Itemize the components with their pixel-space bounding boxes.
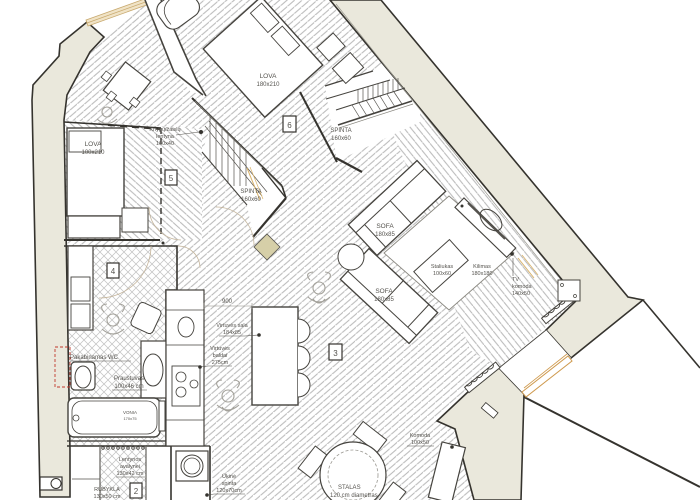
svg-text:Pakabinamas WC: Pakabinamas WC xyxy=(70,355,119,361)
svg-text:Komoda: Komoda xyxy=(410,433,431,439)
svg-text:LOVA: LOVA xyxy=(85,141,103,148)
svg-text:160x60: 160x60 xyxy=(331,136,351,142)
svg-text:100x46 cm: 100x46 cm xyxy=(114,384,143,390)
svg-text:170x75: 170x75 xyxy=(123,416,137,421)
svg-text:STALAS: STALAS xyxy=(338,485,361,491)
svg-text:140x50: 140x50 xyxy=(512,291,530,297)
svg-text:SPINTA: SPINTA xyxy=(330,128,351,134)
svg-text:TV: TV xyxy=(512,277,519,283)
svg-text:275cm: 275cm xyxy=(212,360,229,366)
svg-text:180x180: 180x180 xyxy=(471,271,492,277)
svg-text:180x210: 180x210 xyxy=(256,82,280,88)
svg-text:160x40: 160x40 xyxy=(156,141,174,147)
svg-text:180x85: 180x85 xyxy=(375,232,395,238)
svg-text:SOFA: SOFA xyxy=(376,223,394,230)
svg-text:SOFA: SOFA xyxy=(375,288,393,295)
svg-text:100x210: 100x210 xyxy=(81,150,105,156)
svg-text:Kilimas: Kilimas xyxy=(473,264,491,270)
svg-text:3: 3 xyxy=(333,349,338,358)
svg-text:avalynei: avalynei xyxy=(120,464,140,470)
svg-text:120x70cm: 120x70cm xyxy=(216,488,242,494)
svg-text:120 cm diametras: 120 cm diametras xyxy=(330,493,378,499)
svg-text:2: 2 xyxy=(134,487,139,496)
svg-text:Lentynos: Lentynos xyxy=(119,457,142,463)
svg-text:130x42 cm: 130x42 cm xyxy=(117,471,144,477)
svg-text:baldai: baldai xyxy=(213,353,228,359)
svg-text:Knygų/žaislų: Knygų/žaislų xyxy=(149,127,180,133)
svg-text:100x60: 100x60 xyxy=(433,271,451,277)
svg-text:180x85: 180x85 xyxy=(374,297,394,303)
svg-text:Staliukas: Staliukas xyxy=(431,264,454,270)
svg-text:spinta: spinta xyxy=(222,481,238,487)
svg-text:100x50: 100x50 xyxy=(411,440,429,446)
svg-text:Ūkinė: Ūkinė xyxy=(222,473,236,480)
svg-text:160x60: 160x60 xyxy=(241,197,261,203)
svg-text:lentyna: lentyna xyxy=(156,134,175,140)
svg-text:Virtuvės sala: Virtuvės sala xyxy=(216,323,248,329)
svg-text:5: 5 xyxy=(169,174,174,183)
svg-text:Praustuvas: Praustuvas xyxy=(114,376,144,382)
svg-text:RŪBYKLA: RŪBYKLA xyxy=(94,486,120,493)
svg-text:130x50 cm: 130x50 cm xyxy=(94,494,121,500)
svg-text:900: 900 xyxy=(222,299,233,305)
svg-text:4: 4 xyxy=(111,267,116,276)
svg-text:6: 6 xyxy=(287,121,292,130)
svg-text:komoda: komoda xyxy=(512,284,533,290)
svg-text:LOVA: LOVA xyxy=(260,73,278,80)
svg-text:Virtuvės: Virtuvės xyxy=(210,346,230,352)
svg-text:184x85: 184x85 xyxy=(223,330,241,336)
svg-text:VONIA: VONIA xyxy=(123,410,137,415)
svg-text:SPINTA: SPINTA xyxy=(240,189,261,195)
